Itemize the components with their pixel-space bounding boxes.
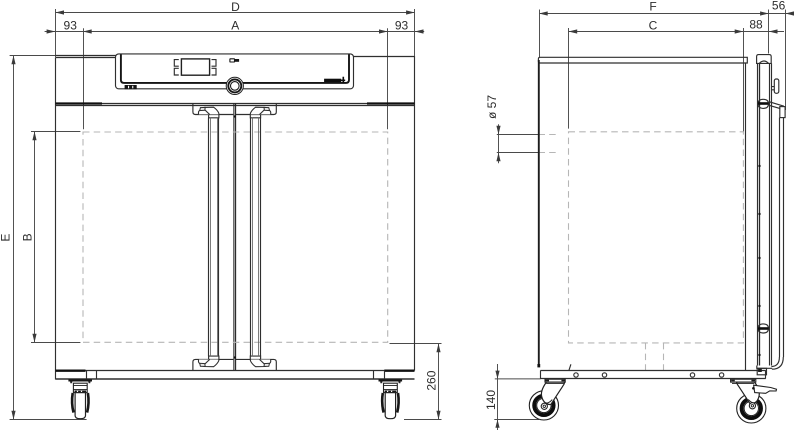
svg-text:93: 93 <box>395 19 409 33</box>
svg-text:56: 56 <box>772 0 786 13</box>
svg-text:C: C <box>649 19 658 33</box>
svg-text:140: 140 <box>484 390 498 410</box>
svg-text:88: 88 <box>749 17 763 31</box>
svg-text:A: A <box>231 19 239 33</box>
svg-text:260: 260 <box>425 370 439 390</box>
svg-text:B: B <box>20 233 34 241</box>
svg-text:E: E <box>0 234 13 242</box>
svg-text:F: F <box>649 0 656 14</box>
svg-text:93: 93 <box>64 19 78 33</box>
svg-text:D: D <box>231 0 240 14</box>
svg-text:ø 57: ø 57 <box>485 95 499 119</box>
